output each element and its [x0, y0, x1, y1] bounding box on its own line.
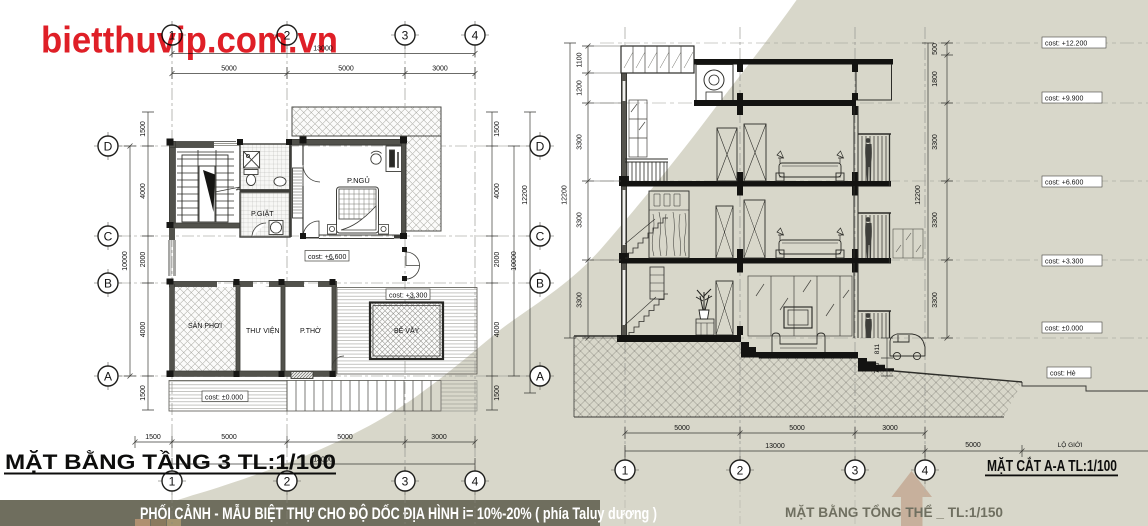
- svg-text:12200: 12200: [522, 185, 529, 205]
- svg-text:1500: 1500: [140, 121, 147, 137]
- svg-text:12200: 12200: [915, 185, 922, 205]
- svg-text:C: C: [536, 230, 545, 244]
- svg-text:3300: 3300: [577, 212, 584, 228]
- svg-text:3000: 3000: [882, 425, 898, 432]
- svg-text:B: B: [536, 277, 544, 291]
- svg-text:cost: Hè: cost: Hè: [1050, 371, 1076, 378]
- svg-text:811: 811: [874, 343, 881, 354]
- svg-text:4000: 4000: [140, 322, 147, 338]
- svg-text:MẶT BẰNG TỔNG THỂ _ TL:1/150: MẶT BẰNG TỔNG THỂ _ TL:1/150: [785, 503, 1003, 520]
- svg-text:2000: 2000: [140, 252, 147, 268]
- svg-text:3300: 3300: [577, 134, 584, 150]
- svg-text:4: 4: [472, 29, 479, 43]
- svg-text:THƯ VIỆN: THƯ VIỆN: [246, 326, 280, 335]
- svg-text:1500: 1500: [140, 385, 147, 401]
- svg-text:PHỐI CẢNH - MẪU BIỆT THỰ CHO Đ: PHỐI CẢNH - MẪU BIỆT THỰ CHO ĐỘ DỐC ĐỊA …: [140, 503, 657, 523]
- svg-text:cost: +9.900: cost: +9.900: [1045, 96, 1083, 103]
- svg-text:P.GIẶT: P.GIẶT: [251, 209, 274, 218]
- svg-text:740: 740: [874, 362, 881, 373]
- svg-text:4000: 4000: [494, 322, 501, 338]
- svg-text:4: 4: [472, 475, 479, 489]
- svg-text:A: A: [104, 370, 112, 384]
- svg-text:1200: 1200: [577, 80, 584, 96]
- svg-text:5000: 5000: [789, 425, 805, 432]
- svg-text:3300: 3300: [932, 134, 939, 150]
- svg-text:LỘ GIỚI: LỘ GIỚI: [1058, 440, 1083, 449]
- svg-text:cost: ±0.000: cost: ±0.000: [1045, 326, 1083, 333]
- svg-text:MẶT CẮT A-A TL:1/100: MẶT CẮT A-A TL:1/100: [987, 456, 1117, 475]
- svg-text:A: A: [536, 370, 544, 384]
- svg-text:cost: +3.300: cost: +3.300: [1045, 259, 1083, 266]
- svg-text:5000: 5000: [674, 425, 690, 432]
- svg-text:3: 3: [402, 29, 409, 43]
- svg-text:2: 2: [284, 475, 291, 489]
- svg-text:cost: +6.600: cost: +6.600: [308, 254, 346, 261]
- svg-text:1500: 1500: [494, 121, 501, 137]
- svg-text:4000: 4000: [494, 183, 501, 199]
- svg-text:5000: 5000: [221, 66, 237, 73]
- svg-text:3300: 3300: [932, 212, 939, 228]
- svg-text:1100: 1100: [577, 52, 584, 67]
- svg-text:C: C: [104, 230, 113, 244]
- svg-text:12200: 12200: [562, 185, 569, 205]
- svg-text:MẶT BẰNG TẦNG 3 TL:1/100: MẶT BẰNG TẦNG 3 TL:1/100: [5, 450, 336, 474]
- svg-text:4000: 4000: [140, 183, 147, 199]
- svg-text:P.NGỦ: P.NGỦ: [347, 176, 370, 185]
- svg-text:3: 3: [852, 464, 859, 478]
- svg-text:1500: 1500: [145, 434, 161, 441]
- svg-text:D: D: [536, 140, 545, 154]
- svg-text:5000: 5000: [338, 66, 354, 73]
- svg-text:P.THỜ: P.THỜ: [300, 326, 321, 335]
- svg-text:cost: +6.600: cost: +6.600: [1045, 180, 1083, 187]
- svg-text:cost: +3.300: cost: +3.300: [389, 292, 427, 299]
- svg-text:B: B: [104, 277, 112, 291]
- svg-text:1800: 1800: [932, 71, 939, 87]
- svg-text:D: D: [104, 140, 113, 154]
- svg-text:3300: 3300: [932, 292, 939, 308]
- svg-text:500: 500: [932, 43, 939, 55]
- svg-text:2000: 2000: [494, 252, 501, 268]
- svg-text:5000: 5000: [221, 434, 237, 441]
- svg-text:13000: 13000: [765, 443, 785, 450]
- svg-text:4: 4: [922, 464, 929, 478]
- svg-text:1: 1: [622, 464, 629, 478]
- svg-text:3000: 3000: [432, 66, 448, 73]
- svg-text:3000: 3000: [431, 434, 447, 441]
- svg-text:10000: 10000: [511, 251, 518, 271]
- svg-text:3: 3: [402, 475, 409, 489]
- svg-text:5000: 5000: [337, 434, 353, 441]
- svg-text:SÂN PHƠI: SÂN PHƠI: [188, 321, 222, 330]
- svg-text:1500: 1500: [494, 385, 501, 401]
- svg-text:cost: ±0.000: cost: ±0.000: [205, 394, 243, 401]
- svg-text:10000: 10000: [122, 251, 129, 271]
- svg-text:cost: +12.200: cost: +12.200: [1045, 41, 1087, 48]
- svg-text:5000: 5000: [965, 442, 981, 449]
- svg-text:3300: 3300: [577, 292, 584, 308]
- svg-text:2: 2: [737, 464, 744, 478]
- svg-text:1: 1: [169, 475, 176, 489]
- svg-text:bietthuvip.com.vn: bietthuvip.com.vn: [41, 20, 338, 61]
